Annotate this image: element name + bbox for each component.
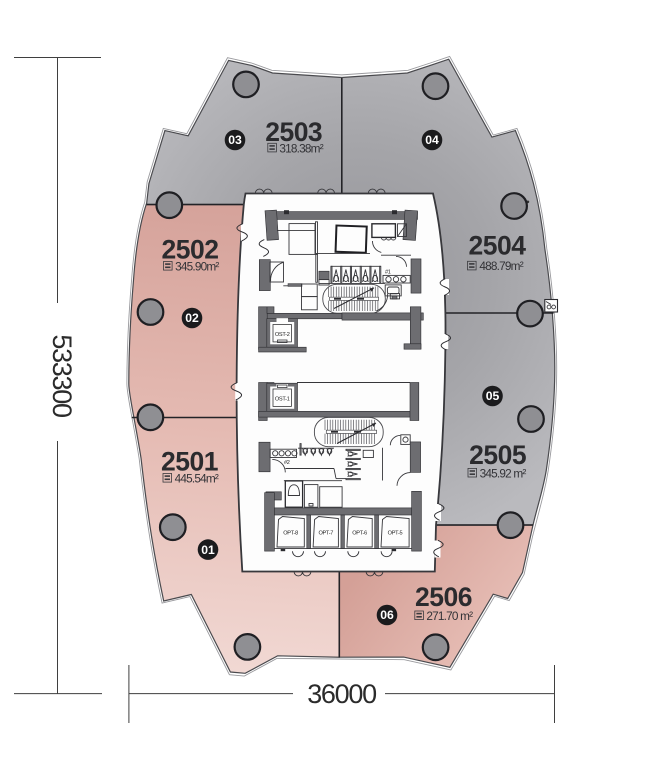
- svg-text:OPT-8: OPT-8: [283, 531, 298, 537]
- svg-text:345.92 m²: 345.92 m²: [480, 466, 527, 480]
- svg-text:01: 01: [201, 543, 215, 557]
- svg-text:OPT-5: OPT-5: [388, 531, 403, 537]
- svg-text:533300: 533300: [47, 334, 77, 417]
- svg-text:271.70 m²: 271.70 m²: [426, 609, 473, 623]
- svg-text:03: 03: [228, 133, 242, 147]
- svg-text:06: 06: [380, 608, 394, 622]
- svg-text:#2: #2: [284, 460, 290, 466]
- svg-text:36000: 36000: [307, 679, 376, 709]
- svg-text:OST-2: OST-2: [275, 332, 290, 338]
- svg-text:05: 05: [486, 389, 500, 403]
- svg-text:2506: 2506: [415, 582, 472, 612]
- svg-text:2504: 2504: [469, 230, 527, 260]
- svg-text:445.54m²: 445.54m²: [175, 472, 219, 486]
- svg-text:318.38m²: 318.38m²: [279, 141, 323, 155]
- svg-text:OST-1: OST-1: [275, 397, 290, 403]
- svg-text:345.90m²: 345.90m²: [175, 260, 219, 274]
- svg-text:488.79m²: 488.79m²: [479, 259, 523, 273]
- svg-text:02: 02: [185, 311, 199, 325]
- svg-text:#1: #1: [385, 270, 391, 276]
- svg-text:04: 04: [425, 133, 439, 147]
- svg-text:OPT-6: OPT-6: [352, 531, 367, 537]
- svg-text:OPT-7: OPT-7: [318, 531, 333, 537]
